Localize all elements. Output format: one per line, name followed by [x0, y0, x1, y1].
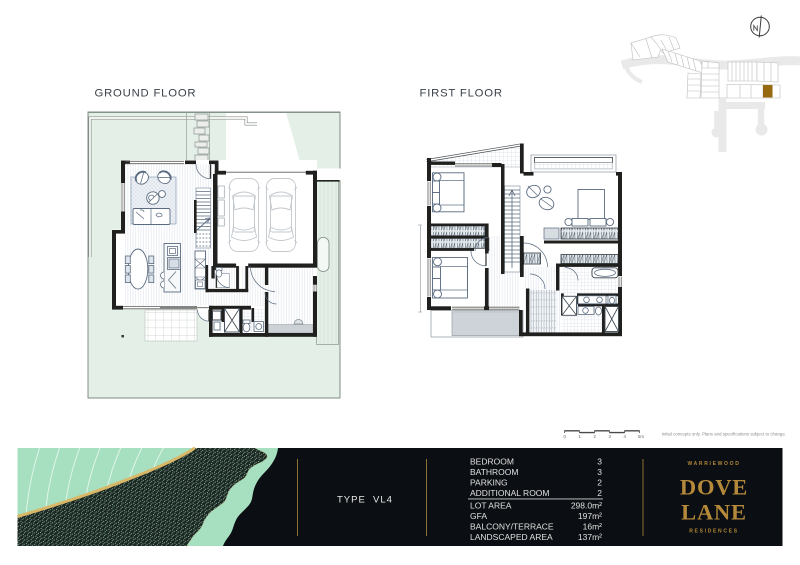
svg-text:197m²: 197m² — [578, 511, 602, 521]
svg-text:137m²: 137m² — [578, 532, 602, 542]
svg-text:GROUND FLOOR: GROUND FLOOR — [95, 88, 197, 100]
svg-text:GFA: GFA — [470, 511, 487, 521]
svg-text:16m²: 16m² — [583, 522, 603, 532]
svg-text:BATHROOM: BATHROOM — [470, 467, 518, 477]
svg-text:1: 1 — [579, 434, 582, 439]
svg-text:TYPE: TYPE — [337, 495, 366, 506]
svg-text:0: 0 — [564, 434, 567, 439]
svg-text:BALCONY/TERRACE: BALCONY/TERRACE — [470, 522, 554, 532]
svg-text:FIRST FLOOR: FIRST FLOOR — [420, 88, 503, 100]
svg-text:3: 3 — [597, 467, 602, 477]
svg-text:ADDITIONAL ROOM: ADDITIONAL ROOM — [470, 488, 550, 498]
svg-text:LANDSCAPED AREA: LANDSCAPED AREA — [470, 532, 553, 542]
svg-text:3: 3 — [597, 457, 602, 467]
svg-text:3: 3 — [609, 434, 612, 439]
svg-text:VL4: VL4 — [373, 495, 393, 506]
svg-text:LOT AREA: LOT AREA — [470, 501, 512, 511]
svg-text:298.0m²: 298.0m² — [571, 501, 602, 511]
svg-text:DOVE: DOVE — [680, 475, 748, 500]
svg-text:2: 2 — [597, 478, 602, 488]
svg-text:2: 2 — [594, 434, 597, 439]
svg-text:RESIDENCES: RESIDENCES — [689, 529, 739, 535]
svg-text:WARRIEWOOD: WARRIEWOOD — [687, 461, 740, 467]
svg-text:LANE: LANE — [681, 500, 747, 525]
svg-text:2: 2 — [597, 488, 602, 498]
svg-text:5m: 5m — [638, 434, 644, 439]
svg-text:4: 4 — [624, 434, 627, 439]
svg-text:PARKING: PARKING — [470, 478, 508, 488]
svg-text:BEDROOM: BEDROOM — [470, 457, 514, 467]
svg-text:Initial concepts only. Plans a: Initial concepts only. Plans and specifi… — [662, 432, 786, 437]
